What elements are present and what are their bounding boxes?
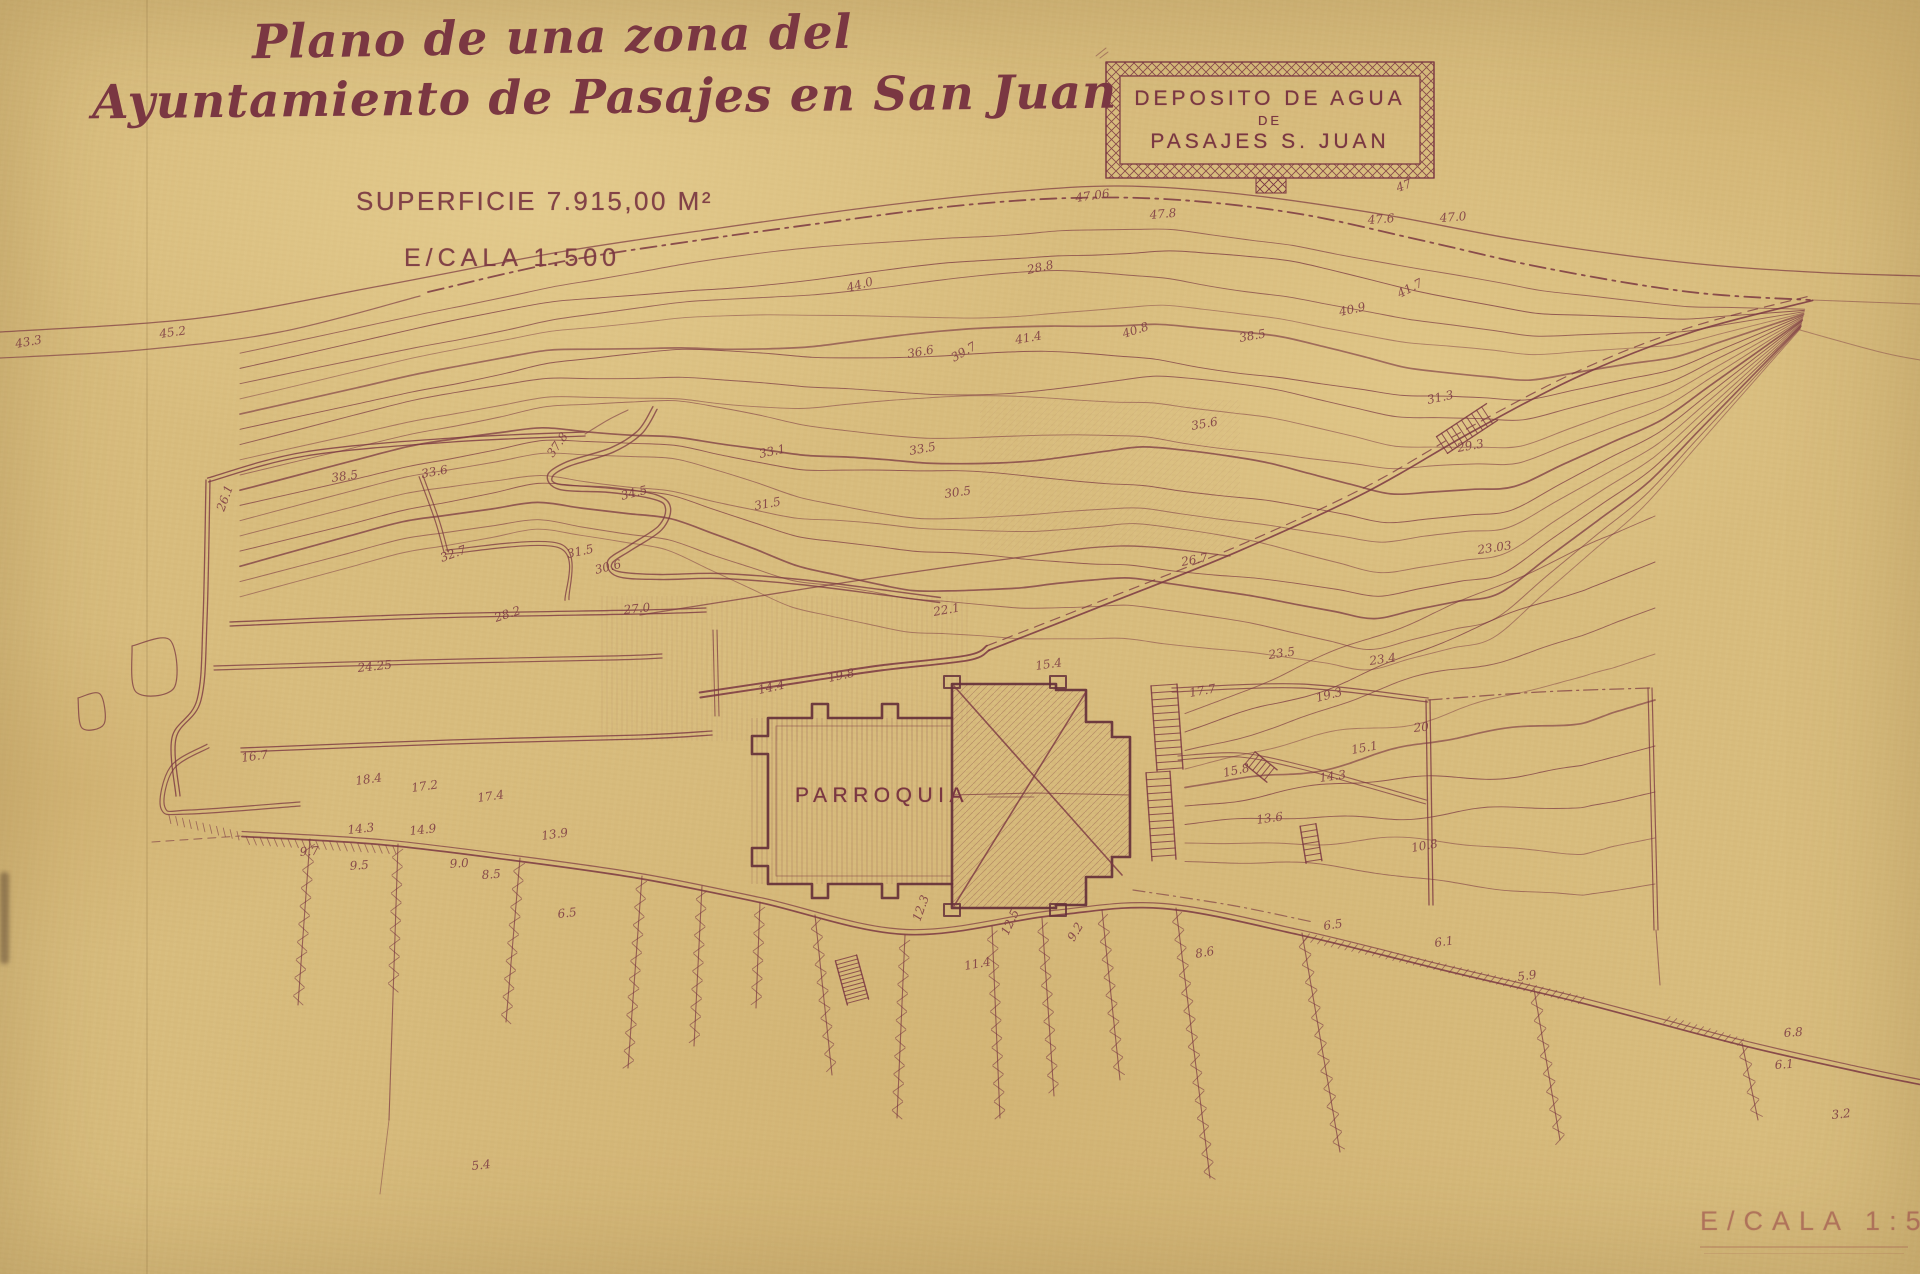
svg-text:5.4: 5.4: [471, 1157, 491, 1173]
scale-label: E/CALA 1:500: [404, 244, 621, 273]
svg-text:31.3: 31.3: [1426, 388, 1455, 407]
stamp-underline-2: [1704, 1253, 1904, 1254]
svg-text:26.1: 26.1: [213, 483, 236, 514]
svg-text:6.5: 6.5: [1322, 916, 1343, 933]
plan-drawing: 45.243.344.047.0647.828.847.647.04741.74…: [0, 0, 1920, 1274]
svg-text:27.0: 27.0: [622, 600, 651, 617]
svg-text:39.7: 39.7: [949, 339, 979, 365]
svg-text:16.7: 16.7: [240, 747, 269, 765]
svg-text:36.6: 36.6: [906, 342, 935, 360]
svg-text:28.8: 28.8: [1025, 258, 1055, 278]
svg-text:11.4: 11.4: [963, 955, 992, 973]
svg-text:23.5: 23.5: [1266, 644, 1295, 662]
svg-text:8.5: 8.5: [481, 867, 501, 882]
svg-text:41.7: 41.7: [1394, 276, 1425, 302]
svg-text:19.3: 19.3: [1314, 685, 1344, 705]
svg-text:41.4: 41.4: [1013, 329, 1043, 348]
svg-text:34.5: 34.5: [619, 483, 648, 503]
svg-text:31.5: 31.5: [753, 495, 782, 513]
svg-text:24.25: 24.25: [356, 657, 393, 675]
svg-text:33.1: 33.1: [758, 442, 787, 461]
deposit-box-line2: DE: [1258, 113, 1282, 128]
svg-text:12.5: 12.5: [998, 907, 1022, 937]
svg-text:13.9: 13.9: [540, 825, 569, 843]
svg-text:9.2: 9.2: [1064, 920, 1086, 944]
svg-text:5.9: 5.9: [1516, 967, 1537, 984]
svg-text:30.6: 30.6: [593, 557, 623, 577]
svg-text:14.3: 14.3: [347, 820, 375, 837]
svg-text:40.9: 40.9: [1337, 300, 1367, 320]
paper-stain: [0, 872, 9, 964]
deposit-box-line1: DEPOSITO DE AGUA: [1134, 87, 1405, 111]
map-title-line1: Plano de una zona del: [252, 5, 853, 70]
svg-text:28.2: 28.2: [492, 603, 523, 625]
svg-text:23.4: 23.4: [1367, 650, 1396, 668]
water-deposit-title-box: DEPOSITO DE AGUA DE PASAJES S. JUAN: [1106, 62, 1434, 178]
svg-text:6.1: 6.1: [1433, 933, 1454, 950]
plan-sheet: 45.243.344.047.0647.828.847.647.04741.74…: [0, 0, 1920, 1274]
svg-text:47.8: 47.8: [1148, 206, 1177, 222]
surface-area-label: SUPERFICIE 7.915,00 M²: [356, 186, 713, 217]
map-title-line2: Ayuntamiento de Pasajes en San Juan: [92, 65, 1118, 131]
svg-text:15.4: 15.4: [1034, 655, 1062, 673]
svg-text:17.4: 17.4: [476, 787, 504, 805]
svg-text:30.5: 30.5: [943, 483, 971, 501]
svg-text:6.5: 6.5: [557, 905, 577, 921]
scanned-plan-page: { "document": { "title_line1": "Plano de…: [0, 0, 1920, 1274]
svg-text:18.4: 18.4: [354, 770, 382, 788]
svg-text:38.5: 38.5: [330, 467, 358, 485]
svg-text:9.0: 9.0: [449, 856, 469, 871]
svg-text:40.8: 40.8: [1120, 319, 1151, 341]
svg-text:3.2: 3.2: [1831, 1106, 1851, 1122]
svg-text:13.6: 13.6: [1255, 809, 1284, 827]
svg-text:14.9: 14.9: [409, 821, 437, 838]
svg-text:47: 47: [1393, 176, 1413, 195]
svg-text:6.1: 6.1: [1774, 1057, 1794, 1072]
svg-text:23.03: 23.03: [1475, 538, 1512, 557]
svg-text:8.6: 8.6: [1194, 944, 1216, 961]
svg-text:17.7: 17.7: [1188, 681, 1217, 699]
svg-text:9.5: 9.5: [349, 858, 369, 873]
svg-text:14.3: 14.3: [1318, 767, 1347, 785]
svg-text:17.2: 17.2: [410, 777, 438, 795]
svg-text:47.06: 47.06: [1073, 186, 1110, 205]
svg-text:33.6: 33.6: [420, 462, 449, 480]
svg-text:44.0: 44.0: [844, 274, 875, 295]
svg-text:31.5: 31.5: [566, 542, 595, 561]
svg-text:47.0: 47.0: [1438, 209, 1467, 225]
church-label: PARROQUIA: [795, 784, 969, 808]
stamp-underline: [1700, 1246, 1908, 1248]
svg-text:26.7: 26.7: [1179, 550, 1209, 569]
svg-text:43.3: 43.3: [13, 332, 43, 351]
svg-text:38.5: 38.5: [1238, 327, 1267, 345]
svg-text:12.3: 12.3: [910, 893, 932, 923]
svg-text:6.8: 6.8: [1783, 1025, 1803, 1040]
svg-text:47.6: 47.6: [1366, 211, 1395, 227]
paper-fold-line: [146, 0, 148, 1274]
faded-scale-stamp: E/CALA 1:5: [1700, 1206, 1920, 1237]
svg-text:37.8: 37.8: [544, 430, 571, 460]
deposit-box-line3: PASAJES S. JUAN: [1150, 130, 1389, 154]
svg-text:10.8: 10.8: [1410, 836, 1439, 854]
svg-text:9.7: 9.7: [299, 844, 319, 859]
svg-text:33.5: 33.5: [908, 440, 937, 458]
svg-text:45.2: 45.2: [157, 323, 186, 341]
svg-text:20: 20: [1412, 719, 1430, 735]
